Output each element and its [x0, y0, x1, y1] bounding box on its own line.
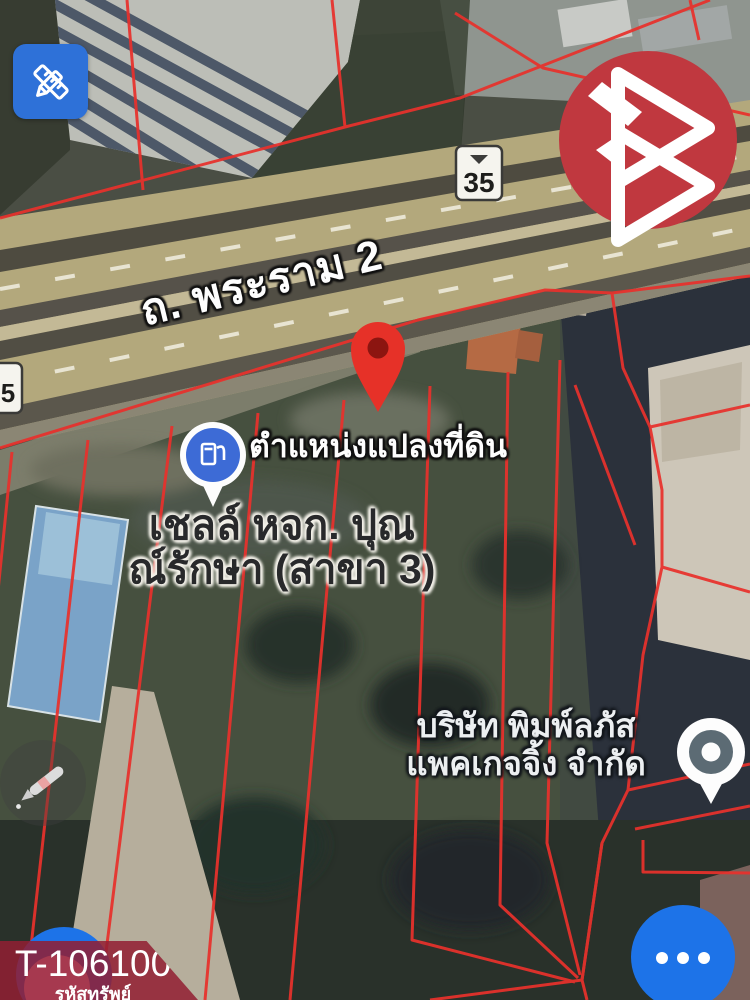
ellipsis-icon	[656, 952, 710, 964]
gas-station-label: เชลล์ หจก. ปุณ ณ์รักษา (สาขา 3)	[122, 504, 442, 592]
company-label: บริษัท พิมพ์ลภัส แพคเกจจิ้ง จำกัด	[370, 707, 682, 782]
route-shield-35: 35	[456, 146, 502, 200]
route-shield-partial: 5	[0, 363, 22, 413]
edit-pin-button[interactable]	[0, 740, 86, 826]
svg-text:5: 5	[1, 378, 15, 408]
svg-text:35: 35	[463, 167, 494, 198]
asset-code-caption: รหัสทรัพย์	[0, 979, 186, 1000]
satellite-map: 35 5	[0, 0, 750, 1000]
gas-station-label-line2: ณ์รักษา (สาขา 3)	[122, 548, 442, 592]
ruler-pencil-icon	[27, 58, 75, 106]
map-canvas[interactable]: 35 5	[0, 0, 750, 1000]
draw-tools-button[interactable]	[13, 44, 88, 119]
company-label-line1: บริษัท พิมพ์ลภัส	[370, 707, 682, 745]
company-label-line2: แพคเกจจิ้ง จำกัด	[370, 745, 682, 783]
pencil-icon	[0, 740, 86, 826]
land-pin-caption: ตำแหน่งแปลงที่ดิน	[238, 421, 518, 472]
more-options-button[interactable]	[631, 905, 735, 1000]
gas-station-label-line1: เชลล์ หจก. ปุณ	[122, 504, 442, 548]
